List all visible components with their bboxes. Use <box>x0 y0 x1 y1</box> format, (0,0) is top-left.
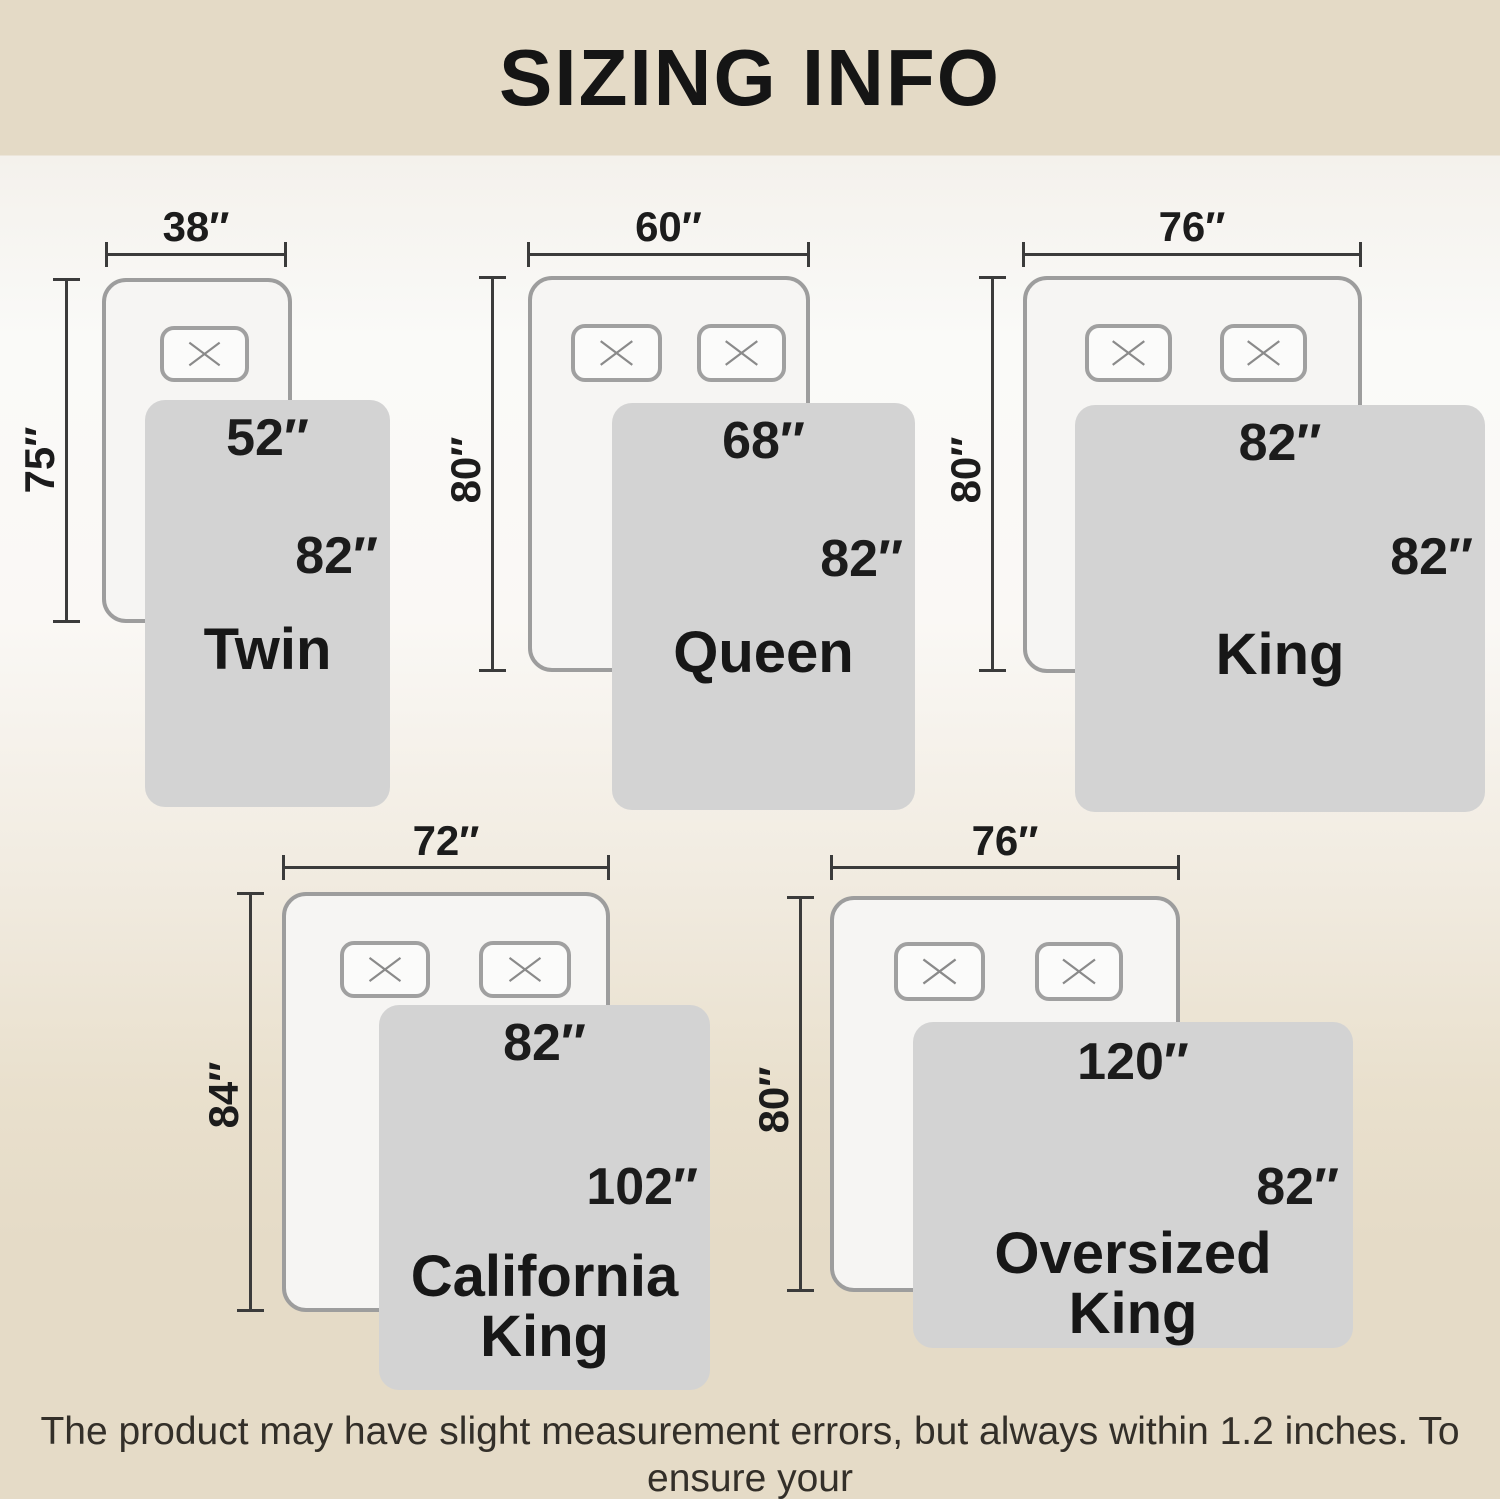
pillow-x-icon <box>483 945 567 994</box>
pillow <box>697 324 786 382</box>
pillow <box>571 324 662 382</box>
bed-size-name: Oversized King <box>913 1224 1353 1344</box>
mattress-width-label: 72″ <box>282 818 610 864</box>
pillow-x-icon <box>701 328 782 378</box>
pillow <box>340 941 430 998</box>
mattress-length-label: 80″ <box>441 410 491 530</box>
pillow-x-icon <box>164 330 245 378</box>
blanket-length-label: 82″ <box>820 529 903 589</box>
mattress-width-dimension-line <box>527 253 810 256</box>
pillow-x-icon <box>1089 328 1168 378</box>
pillow <box>1085 324 1172 382</box>
mattress-width-label: 38″ <box>105 204 287 250</box>
pillow-x-icon <box>1039 946 1119 997</box>
mattress-length-dimension-line <box>249 892 252 1312</box>
blanket-width-label: 52″ <box>145 408 390 468</box>
pillow-x-icon <box>344 945 426 994</box>
pillow <box>1035 942 1123 1001</box>
pillow-x-icon <box>1224 328 1303 378</box>
mattress-length-label: 84″ <box>199 1035 249 1155</box>
disclaimer-line-1: The product may have slight measurement … <box>0 1408 1500 1499</box>
mattress-length-dimension-line <box>491 276 494 672</box>
blanket-width-label: 82″ <box>379 1013 710 1073</box>
bed-size-name: Queen <box>612 623 915 683</box>
sizing-info-graphic: SIZING INFO 38″ 75″ 52″ 82″ Twin 60″ 80″ <box>0 0 1500 1499</box>
mattress-length-label: 80″ <box>941 410 991 530</box>
mattress-width-label: 76″ <box>1022 204 1362 250</box>
disclaimer-text: The product may have slight measurement … <box>0 1408 1500 1499</box>
mattress-width-label: 60″ <box>527 204 810 250</box>
pillow-x-icon <box>575 328 658 378</box>
blanket-length-label: 82″ <box>1390 527 1473 587</box>
bed-size-name: California King <box>379 1247 710 1367</box>
blanket-length-label: 82″ <box>1256 1157 1339 1217</box>
blanket-length-label: 82″ <box>295 526 378 586</box>
blanket-width-label: 68″ <box>612 411 915 471</box>
mattress-width-dimension-line <box>282 866 610 869</box>
blanket: 82″ 82″ King <box>1075 405 1485 812</box>
mattress-length-label: 75″ <box>15 400 65 520</box>
mattress-length-dimension-line <box>799 896 802 1292</box>
mattress-width-dimension-line <box>1022 253 1362 256</box>
mattress-width-label: 76″ <box>830 818 1180 864</box>
mattress-length-dimension-line <box>65 278 68 623</box>
pillow <box>160 326 249 382</box>
mattress-length-label: 80″ <box>749 1040 799 1160</box>
pillow <box>894 942 985 1001</box>
blanket-length-label: 102″ <box>586 1157 698 1217</box>
bed-size-name: King <box>1075 625 1485 685</box>
mattress-width-dimension-line <box>830 866 1180 869</box>
mattress-length-dimension-line <box>991 276 994 672</box>
pillow <box>479 941 571 998</box>
blanket-width-label: 82″ <box>1075 413 1485 473</box>
page-title: SIZING INFO <box>0 0 1500 155</box>
pillow <box>1220 324 1307 382</box>
blanket-width-label: 120″ <box>913 1032 1353 1092</box>
blanket: 52″ 82″ Twin <box>145 400 390 807</box>
pillow-x-icon <box>898 946 981 997</box>
mattress-width-dimension-line <box>105 253 287 256</box>
blanket: 120″ 82″ Oversized King <box>913 1022 1353 1348</box>
blanket: 82″ 102″ California King <box>379 1005 710 1390</box>
blanket: 68″ 82″ Queen <box>612 403 915 810</box>
bed-size-name: Twin <box>145 620 390 680</box>
